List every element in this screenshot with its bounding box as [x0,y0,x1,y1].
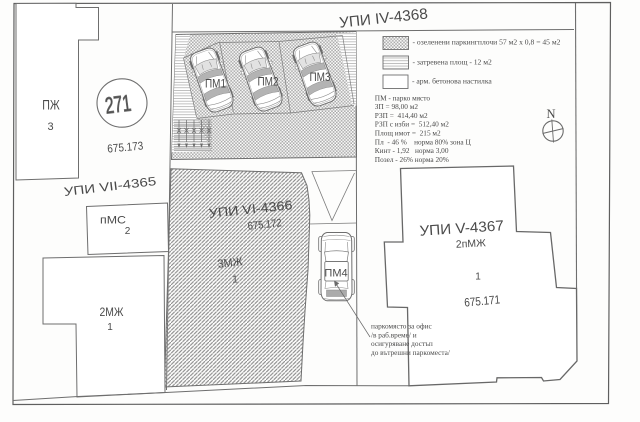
svg-text:3: 3 [47,121,53,133]
svg-text:ПМ1: ПМ1 [205,77,226,91]
svg-text:ПМ3: ПМ3 [310,70,331,84]
svg-text:РЗП = 414,40 м2: РЗП = 414,40 м2 [375,111,428,120]
svg-text:1: 1 [232,275,238,286]
svg-text:2пМЖ: 2пМЖ [456,237,487,251]
svg-text:2МЖ: 2МЖ [100,307,124,319]
svg-text:- затревена площ - 12 м2: - затревена площ - 12 м2 [413,58,493,67]
svg-text:РЗП с изби = 512,40 м2: РЗП с изби = 512,40 м2 [375,120,449,129]
svg-text:1: 1 [107,322,113,333]
svg-text:Площ имот = 215 м2: Площ имот = 215 м2 [375,128,441,137]
svg-text:- озеленени паркингплочи 57 м2: - озеленени паркингплочи 57 м2 х 0,8 = 4… [413,38,561,47]
svg-text:паркомясто за офис: паркомясто за офис [371,322,432,331]
svg-text:ПМ4: ПМ4 [324,268,347,280]
svg-text:271: 271 [104,90,133,119]
svg-text:ПМ2: ПМ2 [258,75,279,89]
svg-text:осигуряване достъп: осигуряване достъп [371,339,433,348]
svg-text:пМС: пМС [100,215,126,227]
svg-text:2: 2 [125,226,131,237]
svg-text:1: 1 [475,272,481,283]
svg-text:ПЖ: ПЖ [42,98,60,113]
svg-text:ПМ - парко място: ПМ - парко място [375,94,431,103]
svg-text:Пл - 46 % норма 80% зона Ц: Пл - 46 % норма 80% зона Ц [375,137,472,146]
svg-text:ЗП = 98,00 м2: ЗП = 98,00 м2 [375,102,419,111]
svg-text:до вътрешни паркоместа/: до вътрешни паркоместа/ [371,348,451,357]
svg-text:Позел - 26% норма 20%: Позел - 26% норма 20% [375,155,449,164]
svg-text:/в раб.време/ и: /в раб.време/ и [371,331,417,340]
svg-text:N: N [546,107,555,121]
svg-text:- арм. бетонова настилка: - арм. бетонова настилка [412,77,492,86]
